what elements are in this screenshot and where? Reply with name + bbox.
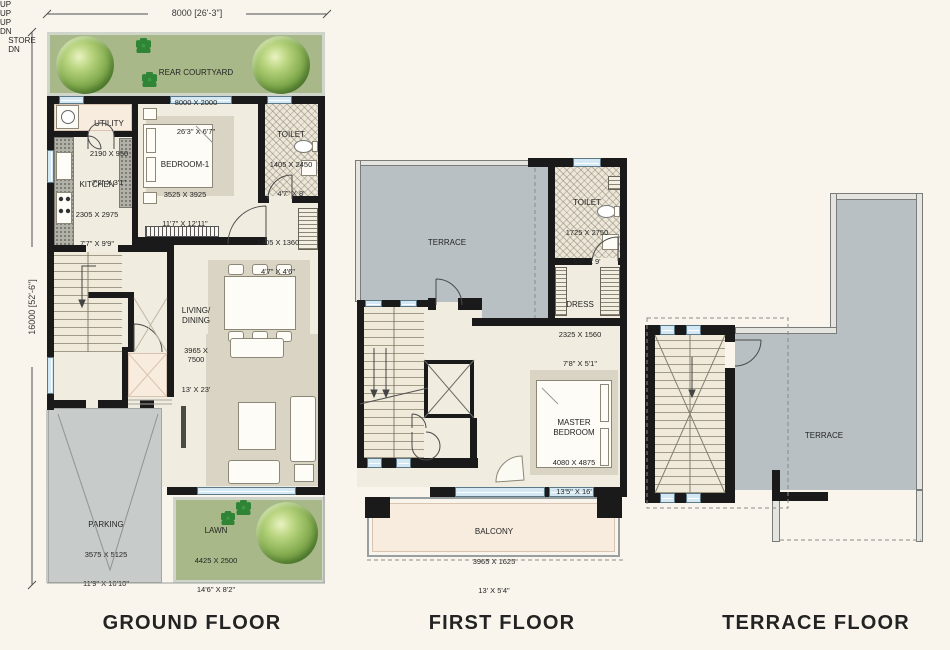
wall-segment [645,325,655,503]
window [365,300,382,307]
wall-segment [128,292,134,352]
window [660,493,675,503]
sofa-icon [228,460,280,484]
passage-label: 1405 X 1360 4'7" X 4'6" [250,218,306,297]
parking-label: PARKING 3575 X 5125 11'9" X 16'10" [62,500,150,609]
wall-segment [122,347,128,400]
foyer [134,298,167,352]
window [47,357,54,394]
wall-segment [472,318,555,326]
parapet-wall [916,490,923,542]
coffee-table-icon [238,402,276,450]
wall-segment [458,298,482,310]
wall-segment [620,158,627,497]
dress-label: DRESS 2325 X 1560 7'8" X 5'1" [552,280,608,389]
window [367,458,382,468]
terrace-floor-title: TERRACE FLOOR [706,612,926,635]
window [686,493,701,503]
stairs-dn-label: DN [0,27,26,36]
parapet-wall [830,193,923,200]
wall-segment [772,492,828,501]
dimension-width-label: 8000 [26'-3"] [148,8,246,18]
window [400,300,417,307]
washing-machine-icon [56,105,79,129]
living-dining-label: LIVING/ DINING 3965 X 7500 13' X 23' [172,286,220,414]
wall-segment [470,418,477,468]
stairs-up-label: UP [0,0,24,9]
floor-plan-canvas: REAR COURTYARD 8000 X 2000 26'3" X 6'7" … [0,0,950,650]
parapet-wall [830,193,837,334]
first-terrace-ext [482,302,548,318]
void-box [424,360,474,418]
dimension-height-label: 16000 [52'-6"] [27,247,37,367]
sofa-icon [230,338,284,358]
store-label: STORE [0,36,44,45]
window [573,158,601,167]
window [267,96,292,104]
entry-porch [128,353,167,397]
staircase [364,307,424,458]
parapet-wall [355,160,361,302]
window [396,458,411,468]
stairs-up-label: UP [0,18,26,27]
parapet-wall [355,160,531,166]
window [197,487,296,495]
porch-up-label: UP [0,9,26,18]
wall-segment [725,325,735,342]
parapet-wall [916,193,923,490]
window [686,325,701,335]
window [660,325,675,335]
first-terrace-label: TERRACE [402,218,492,268]
wall-segment [140,400,154,408]
parapet-wall [735,327,837,334]
wall-segment [618,258,627,265]
wall-segment [725,368,735,503]
terrace-floor-terrace-label: TERRACE [779,411,869,461]
window [47,150,54,183]
wall-segment [357,300,364,468]
store-room [424,418,474,458]
lawn-label: LAWN 4425 X 2500 14'6" X 8'2" [176,506,256,615]
kitchen-label: KITCHEN 2305 X 2975 7'7" X 9'9" [62,160,132,269]
chair-icon [228,264,244,275]
toilet-label: TOILET 1405 X 2450 4'7" X 8' [262,110,320,219]
stairs-dn-label: DN [0,45,28,54]
ground-floor-plan: REAR COURTYARD 8000 X 2000 26'3" X 6'7" … [0,0,950,18]
tree-icon [256,502,318,564]
parapet-wall [772,500,780,542]
wall-segment [428,298,436,310]
room-name: REAR COURTYARD [136,68,256,78]
tree-icon [252,36,310,94]
balcony-label: BALCONY 3965 X 1625 13' X 5'4" [430,507,558,616]
first-floor-title: FIRST FLOOR [402,612,602,635]
first-toilet-label: TOILET 1725 X 2750 5'8" X 9' [556,178,618,287]
master-bedroom-label: MASTER BEDROOM 4080 X 4875 13'5" X 16' [544,398,604,517]
tree-icon [56,36,114,94]
bedroom1-label: BEDROOM-1 3525 X 3925 11'7" X 12'11" [150,140,220,249]
side-table-icon [294,464,314,482]
ground-floor-title: GROUND FLOOR [92,612,292,635]
wall-segment [98,400,128,408]
wall-segment [48,400,86,408]
window [455,487,545,497]
staircase [655,335,725,493]
wall-segment [365,497,390,518]
sofa-icon [290,396,316,462]
